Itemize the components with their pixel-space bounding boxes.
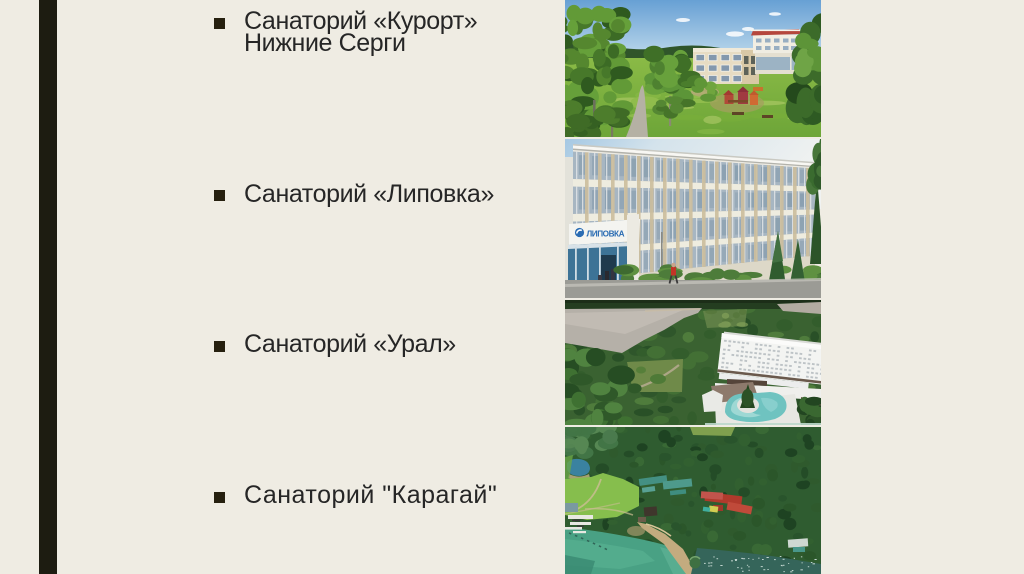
- svg-text:ЛИПОВКА: ЛИПОВКА: [587, 230, 625, 239]
